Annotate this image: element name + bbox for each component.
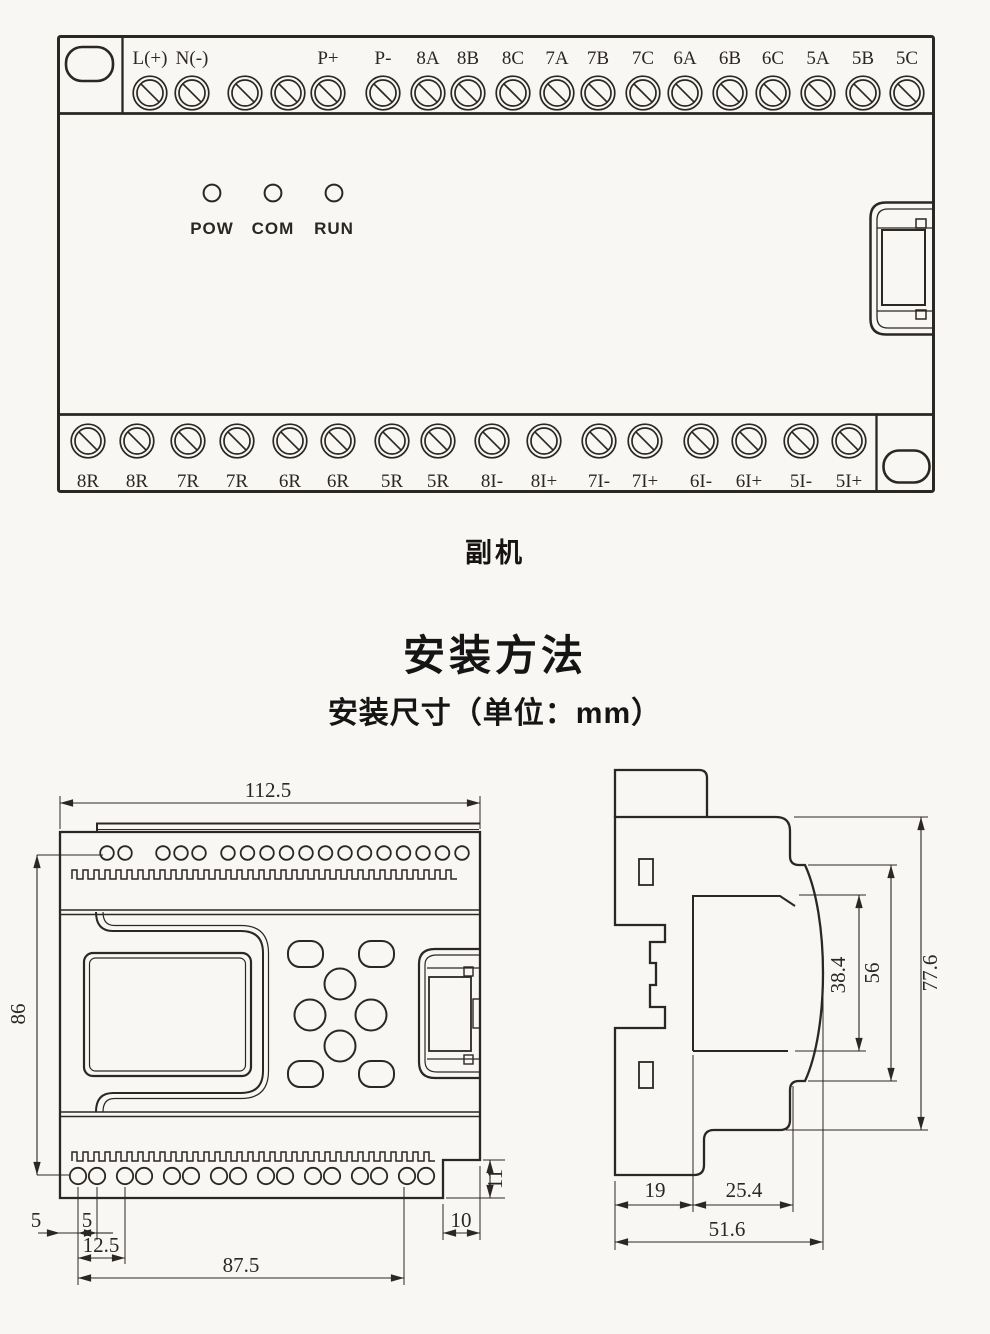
keypad-buttons bbox=[288, 941, 394, 1087]
screw-terminal bbox=[581, 76, 615, 110]
bottom-terminal-labels: 8R8R7R7R6R6R5R5R8I-8I+7I-7I+6I-6I+5I-5I+ bbox=[77, 471, 862, 492]
screw-terminal bbox=[756, 76, 790, 110]
screw-terminal bbox=[628, 424, 662, 458]
plc-device-diagram: L(+)N(-)P+P-8A8B8C7A7B7C6A6B6C5A5B5C 8R8… bbox=[55, 30, 940, 500]
terminal-label: 5C bbox=[896, 48, 918, 69]
terminal-label: P- bbox=[375, 48, 392, 69]
front-outline bbox=[60, 832, 480, 1198]
terminal-label: 5B bbox=[852, 48, 874, 69]
terminal-label: 6I- bbox=[690, 471, 712, 492]
terminal-label: N(-) bbox=[176, 48, 209, 69]
screw-terminal bbox=[582, 424, 616, 458]
screen-window bbox=[84, 953, 251, 1076]
led-label: RUN bbox=[314, 219, 354, 238]
side-outline bbox=[615, 817, 823, 1175]
pow-led bbox=[204, 185, 221, 202]
screw-terminal bbox=[411, 76, 445, 110]
screw-terminal bbox=[784, 424, 818, 458]
terminal-label: 6I+ bbox=[736, 471, 763, 492]
run-led bbox=[326, 185, 343, 202]
top-terminal-labels: L(+)N(-)P+P-8A8B8C7A7B7C6A6B6C5A5B5C bbox=[133, 48, 919, 69]
screw-terminal bbox=[832, 424, 866, 458]
terminal-label: 6A bbox=[673, 48, 697, 69]
screw-terminal bbox=[228, 76, 262, 110]
terminal-label: 8A bbox=[416, 48, 440, 69]
screw-terminal bbox=[120, 424, 154, 458]
side-vent-slot-top bbox=[639, 859, 653, 885]
terminal-label: 6B bbox=[719, 48, 741, 69]
page: L(+)N(-)P+P-8A8B8C7A7B7C6A6B6C5A5B5C 8R8… bbox=[0, 0, 990, 1334]
terminal-label: 7C bbox=[632, 48, 654, 69]
screw-terminal bbox=[311, 76, 345, 110]
terminal-label: 8I+ bbox=[531, 471, 558, 492]
screw-terminal bbox=[273, 424, 307, 458]
side-vent-slot-bottom bbox=[639, 1062, 653, 1088]
terminal-label: 5A bbox=[806, 48, 830, 69]
front-body-seams bbox=[60, 910, 480, 1117]
screw-terminal bbox=[475, 424, 509, 458]
screw-terminal bbox=[890, 76, 924, 110]
dim-notch-height: 11 bbox=[483, 1169, 507, 1189]
terminal-label: 7R bbox=[226, 471, 249, 492]
installation-title: 安装方法 bbox=[0, 622, 990, 683]
front-top-cap bbox=[97, 824, 480, 833]
top-terminal-screws bbox=[133, 76, 924, 110]
screw-terminal bbox=[684, 424, 718, 458]
device-caption: 副机 bbox=[0, 531, 990, 570]
terminal-label: 5R bbox=[427, 471, 450, 492]
terminal-label: 8R bbox=[126, 471, 149, 492]
dim-pair-pitch: 12.5 bbox=[83, 1233, 120, 1257]
screw-terminal bbox=[846, 76, 880, 110]
front-terminals-and-vents bbox=[70, 846, 469, 1184]
screw-terminal bbox=[527, 424, 561, 458]
screw-terminal bbox=[451, 76, 485, 110]
installation-subtitle: 安装尺寸（单位：mm） bbox=[0, 688, 990, 732]
led-labels: POWCOMRUN bbox=[190, 219, 354, 238]
dim-total-depth: 77.6 bbox=[918, 955, 942, 992]
screw-terminal bbox=[801, 76, 835, 110]
led-label: POW bbox=[190, 219, 234, 238]
terminal-label: 8C bbox=[502, 48, 524, 69]
screw-terminal bbox=[321, 424, 355, 458]
terminal-label: 5R bbox=[381, 471, 404, 492]
screw-terminal bbox=[421, 424, 455, 458]
side-inner-body bbox=[693, 896, 795, 1051]
terminal-label: 5I- bbox=[790, 471, 812, 492]
terminal-label: P+ bbox=[317, 48, 338, 69]
screw-terminal bbox=[668, 76, 702, 110]
dim-body-depth: 56 bbox=[860, 963, 884, 984]
terminal-label: 8I- bbox=[481, 471, 503, 492]
dim-mount-span: 87.5 bbox=[223, 1253, 260, 1277]
terminal-label: 7R bbox=[177, 471, 200, 492]
screw-terminal bbox=[366, 76, 400, 110]
side-top-block bbox=[615, 770, 707, 817]
mounting-hole-bottom-right bbox=[884, 451, 930, 483]
screw-terminal bbox=[133, 76, 167, 110]
terminal-label: L(+) bbox=[133, 48, 168, 69]
device-outline bbox=[59, 37, 934, 492]
dim-width: 112.5 bbox=[245, 778, 291, 802]
screw-terminal bbox=[71, 424, 105, 458]
terminal-label: 6R bbox=[327, 471, 350, 492]
dim-edge-offset: 5 bbox=[31, 1208, 42, 1232]
com-led bbox=[265, 185, 282, 202]
expansion-port bbox=[871, 203, 936, 335]
dim-rail-front: 25.4 bbox=[726, 1178, 763, 1202]
terminal-label: 7I+ bbox=[632, 471, 659, 492]
terminal-label: 5I+ bbox=[836, 471, 863, 492]
terminal-label: 8B bbox=[457, 48, 479, 69]
status-led-indicators bbox=[204, 185, 343, 202]
mounting-hole-top-left bbox=[66, 47, 113, 81]
screw-terminal bbox=[496, 76, 530, 110]
display-bezel-outer bbox=[96, 912, 263, 1112]
terminal-label: 7B bbox=[587, 48, 609, 69]
dim-base-depth: 51.6 bbox=[709, 1217, 746, 1241]
screw-terminal bbox=[732, 424, 766, 458]
front-view-drawing: 112.5 86 5 5 12.5 87.5 10 11 bbox=[0, 758, 530, 1303]
dim-height: 86 bbox=[6, 1004, 30, 1025]
terminal-label: 7I- bbox=[588, 471, 610, 492]
dim-notch-width: 10 bbox=[451, 1208, 472, 1232]
screw-terminal bbox=[220, 424, 254, 458]
bottom-terminal-screws bbox=[71, 424, 866, 458]
led-label: COM bbox=[252, 219, 295, 238]
dim-rail-back: 19 bbox=[645, 1178, 666, 1202]
terminal-label: 7A bbox=[545, 48, 569, 69]
side-view-drawing: 38.4 56 77.6 19 25.4 51.6 bbox=[580, 748, 990, 1283]
screw-terminal bbox=[375, 424, 409, 458]
screw-terminal bbox=[175, 76, 209, 110]
screw-terminal bbox=[713, 76, 747, 110]
front-expansion-port bbox=[419, 949, 480, 1078]
display-bezel-inner bbox=[103, 912, 269, 1112]
screw-terminal bbox=[626, 76, 660, 110]
dim-hole-gap: 5 bbox=[82, 1208, 93, 1232]
screw-terminal bbox=[271, 76, 305, 110]
terminal-label: 6R bbox=[279, 471, 302, 492]
terminal-label: 6C bbox=[762, 48, 784, 69]
dim-display-depth: 38.4 bbox=[826, 956, 850, 993]
screw-terminal bbox=[540, 76, 574, 110]
screw-terminal bbox=[171, 424, 205, 458]
terminal-label: 8R bbox=[77, 471, 100, 492]
